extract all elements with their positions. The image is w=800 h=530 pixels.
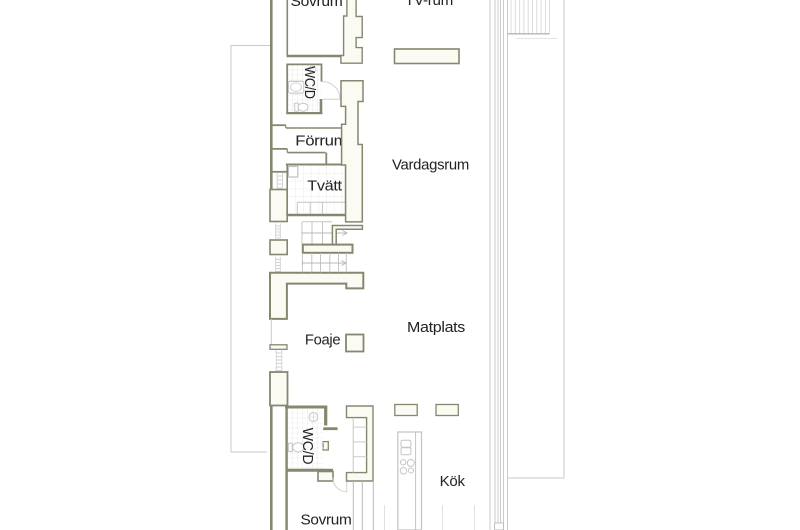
svg-text:Sovrum: Sovrum bbox=[301, 512, 352, 529]
svg-text:WC/D: WC/D bbox=[301, 66, 318, 99]
svg-text:Vardagsrum: Vardagsrum bbox=[392, 157, 469, 174]
svg-text:Foaje: Foaje bbox=[305, 332, 341, 349]
svg-text:TV-rum: TV-rum bbox=[405, 0, 453, 9]
svg-text:Tvätt: Tvätt bbox=[307, 178, 343, 195]
svg-text:Förrum: Förrum bbox=[295, 133, 347, 150]
svg-text:Matplats: Matplats bbox=[407, 319, 465, 336]
svg-text:Sovrum: Sovrum bbox=[291, 0, 343, 10]
svg-text:Kök: Kök bbox=[440, 473, 466, 490]
svg-text:WC/D: WC/D bbox=[299, 428, 316, 465]
